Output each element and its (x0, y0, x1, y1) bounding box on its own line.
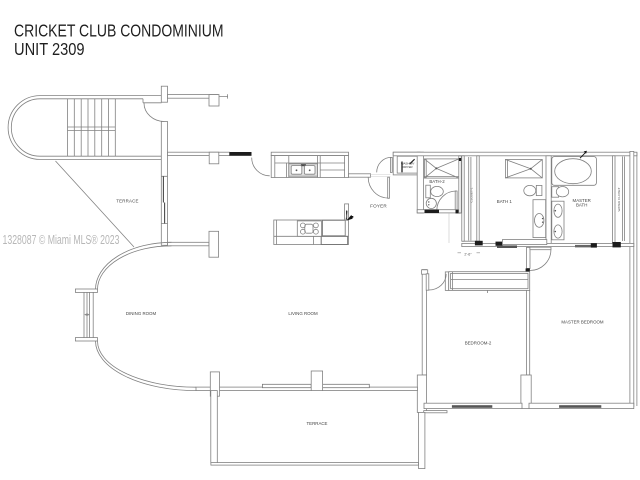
svg-text:BEDROOM-2: BEDROOM-2 (465, 341, 492, 346)
svg-text:CLOSET-1: CLOSET-1 (470, 187, 474, 202)
svg-text:DINING ROOM: DINING ROOM (126, 311, 157, 316)
svg-text:1328087 © Miami MLS® 2023: 1328087 © Miami MLS® 2023 (3, 232, 120, 247)
svg-text:FOYER: FOYER (370, 204, 387, 209)
svg-text:BATH: BATH (576, 203, 587, 208)
svg-text:MASTER BEDROOM: MASTER BEDROOM (561, 320, 604, 325)
svg-text:BATH 1: BATH 1 (497, 199, 513, 204)
svg-text:WATER CLOSET: WATER CLOSET (617, 187, 621, 211)
svg-text:TERRACE: TERRACE (116, 198, 138, 203)
svg-text:TERRACE: TERRACE (307, 421, 328, 426)
svg-text:LIVING ROOM: LIVING ROOM (288, 311, 318, 316)
svg-text:DRYER: DRYER (403, 165, 414, 169)
svg-text:UNIT 2309: UNIT 2309 (14, 39, 85, 59)
svg-text:2'-6": 2'-6" (464, 253, 472, 257)
svg-text:BATH-2: BATH-2 (429, 179, 445, 184)
svg-text:CRICKET CLUB CONDOMINIUM: CRICKET CLUB CONDOMINIUM (14, 21, 224, 41)
